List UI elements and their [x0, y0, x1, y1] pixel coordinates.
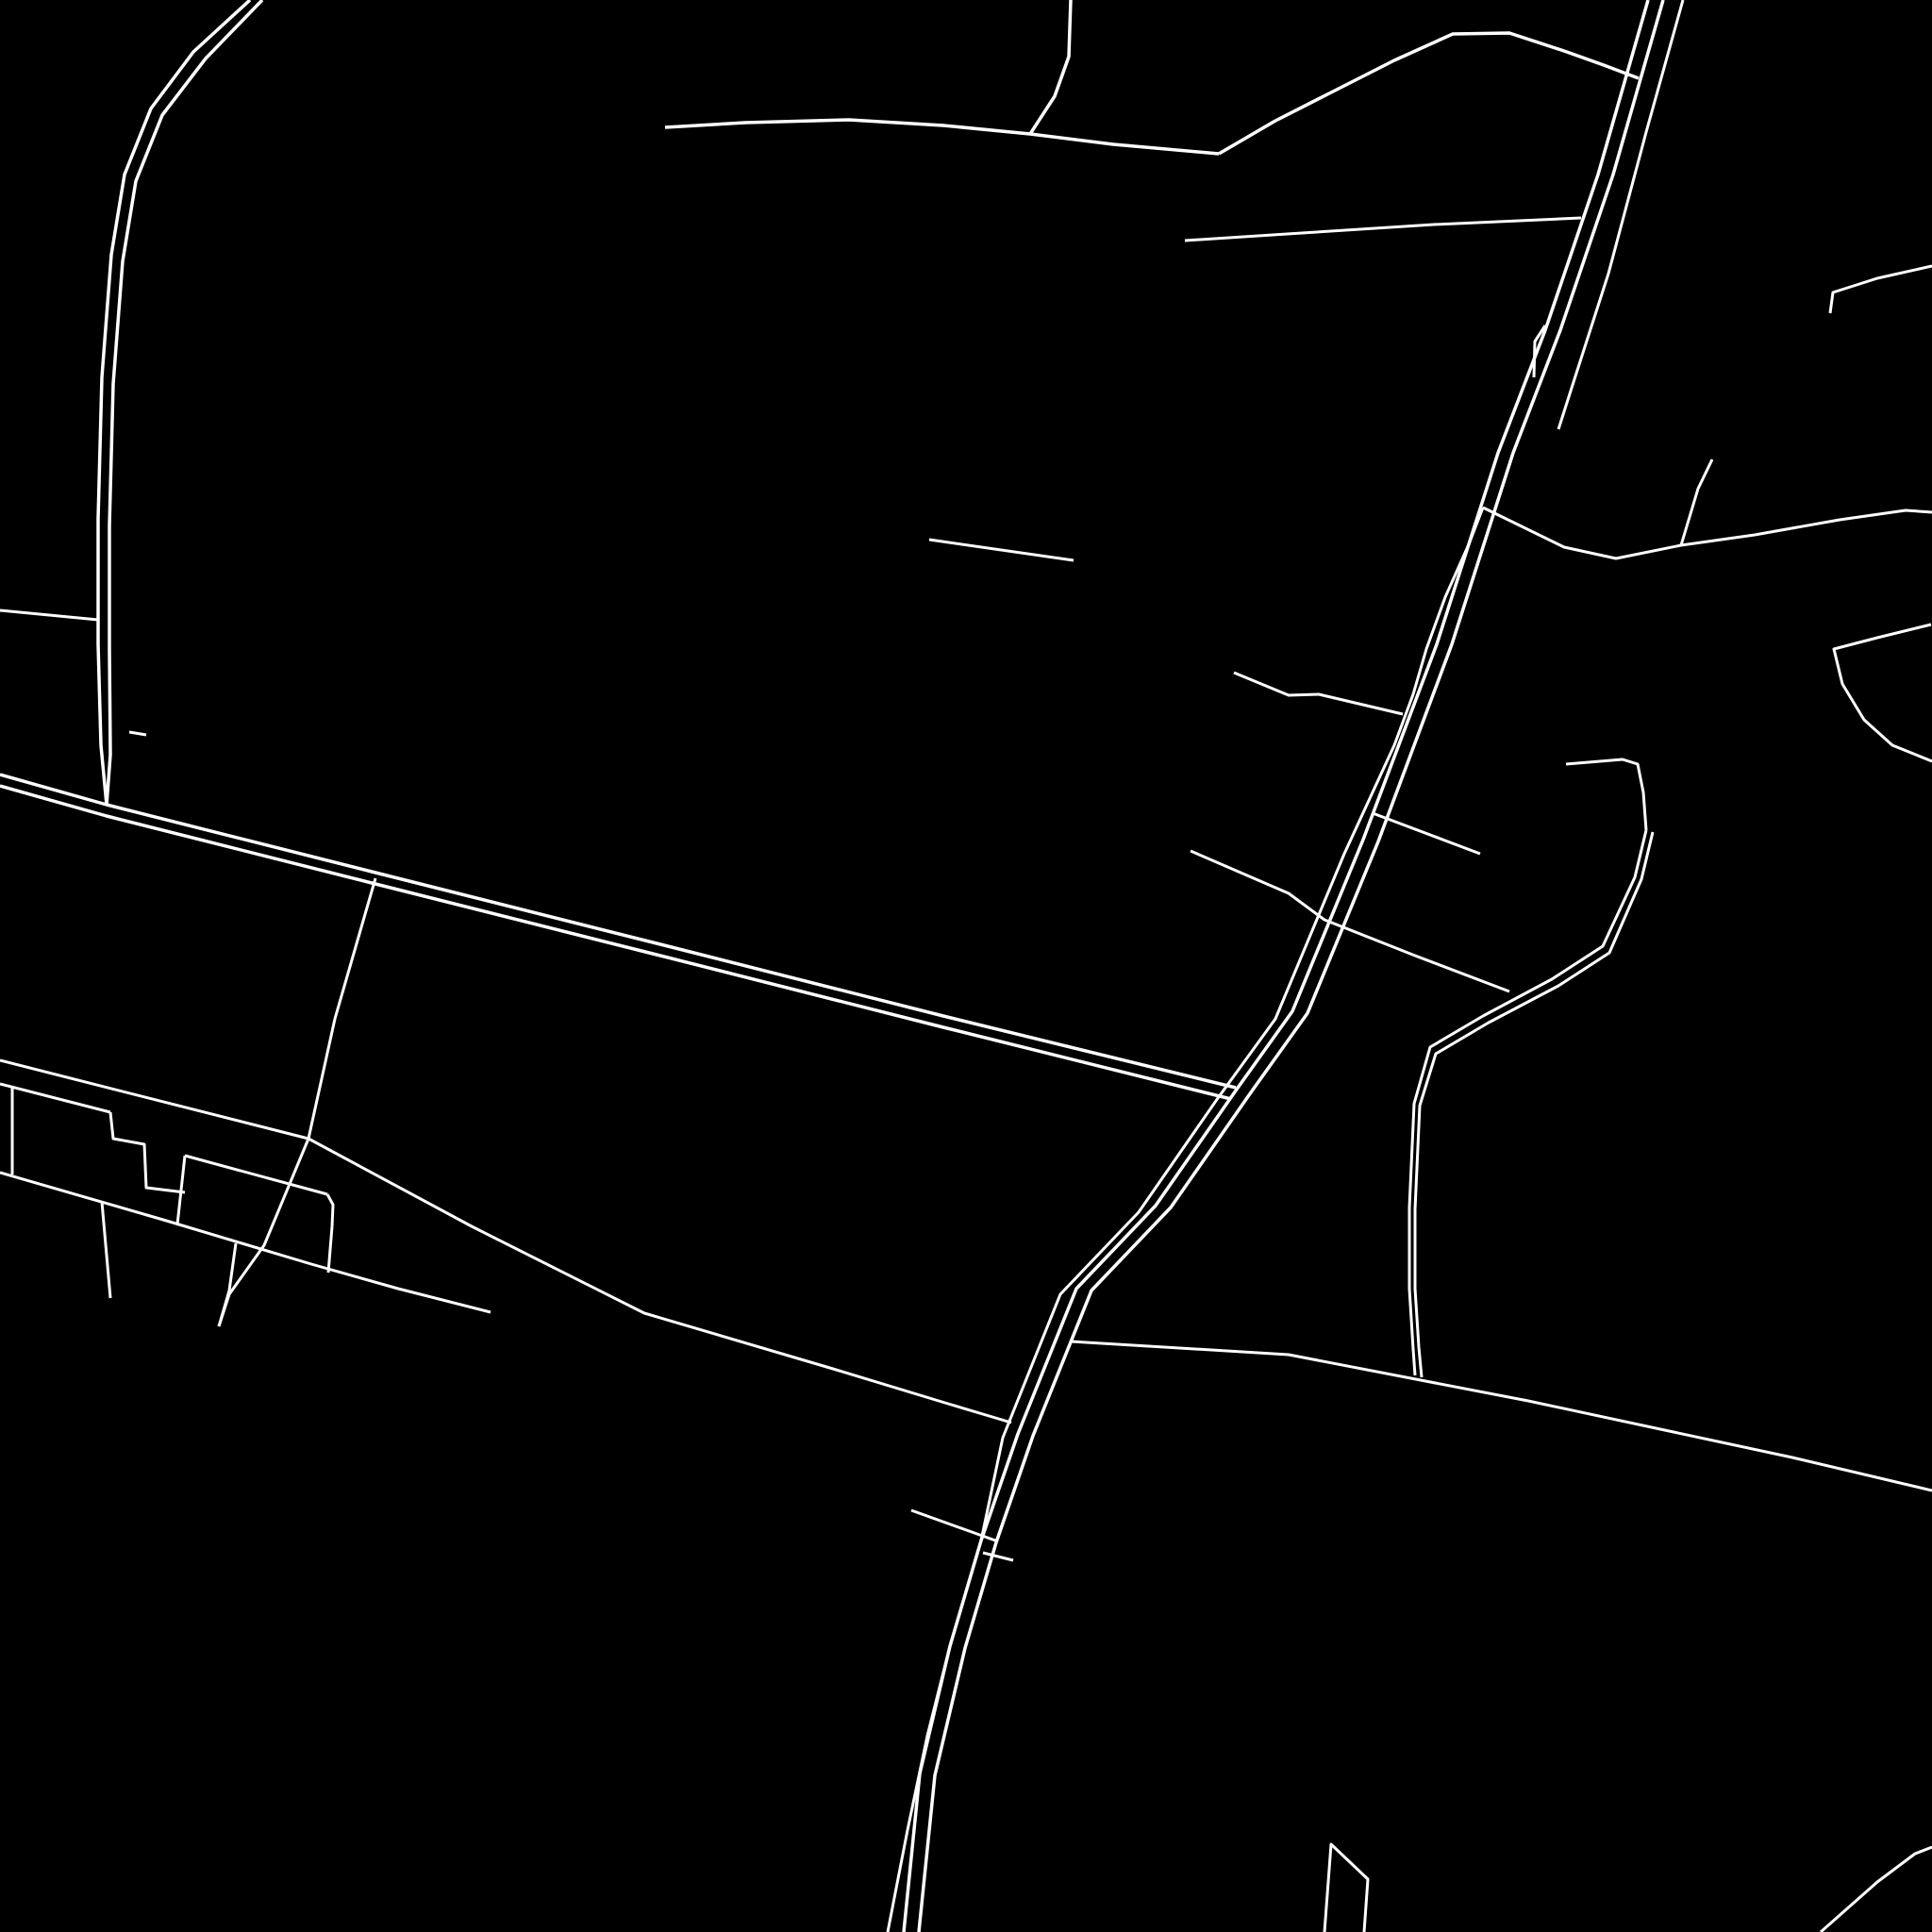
map-canvas[interactable] [0, 0, 1932, 1932]
map-viewport[interactable] [0, 0, 1932, 1932]
